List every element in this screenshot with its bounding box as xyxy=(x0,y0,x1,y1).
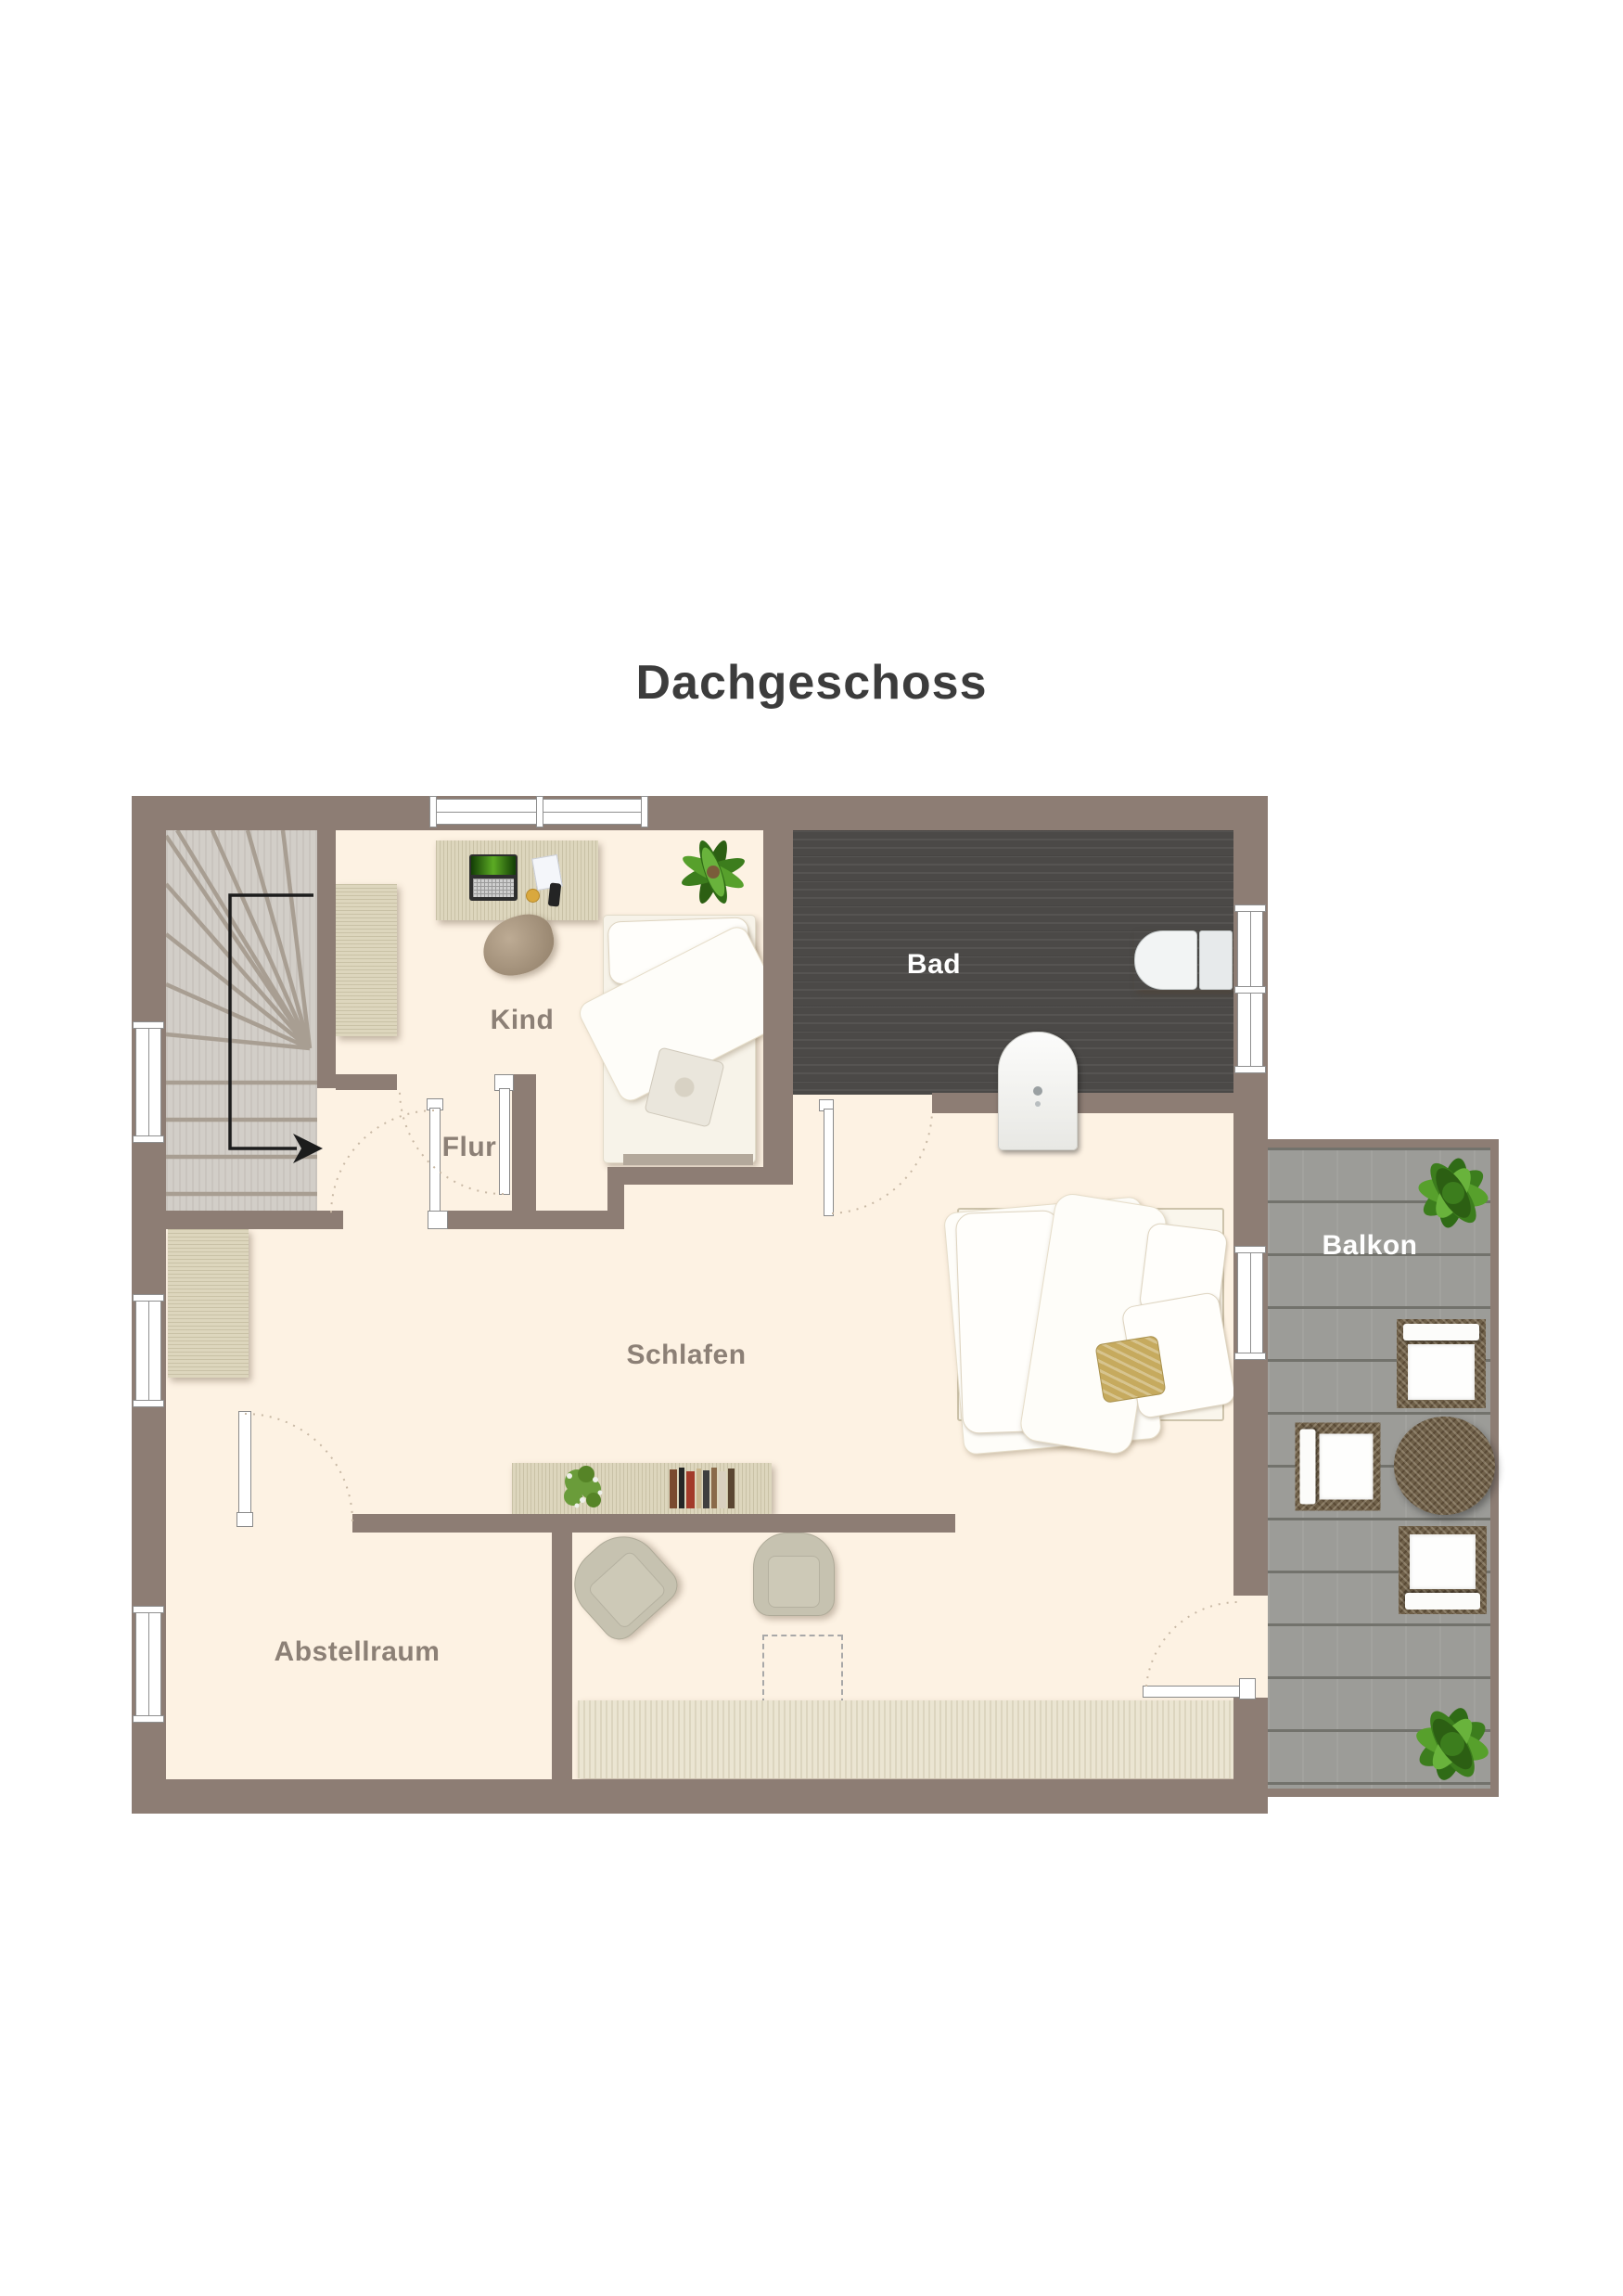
book xyxy=(679,1468,684,1508)
balcony-chair-bottom xyxy=(1399,1526,1487,1614)
laptop-screen xyxy=(471,856,516,875)
armchair-straight xyxy=(753,1533,835,1616)
window-left-1 xyxy=(135,1023,161,1141)
window-cap xyxy=(429,796,437,827)
desk xyxy=(436,840,598,920)
wall-flur-south xyxy=(442,1211,624,1229)
book xyxy=(670,1469,677,1508)
book xyxy=(728,1469,735,1508)
kind-plant xyxy=(673,833,753,911)
wardrobe xyxy=(168,1229,249,1378)
balcony-table xyxy=(1394,1417,1495,1515)
sideboard-plant xyxy=(549,1454,616,1520)
window-cap xyxy=(1234,1066,1266,1073)
books-row xyxy=(670,1468,735,1508)
wall-bottom xyxy=(132,1779,1268,1814)
window-cap xyxy=(133,1715,164,1723)
chair-backrest xyxy=(1403,1324,1480,1340)
toilet xyxy=(1134,930,1233,990)
wall-flur-east xyxy=(512,1074,536,1213)
laptop xyxy=(469,854,518,901)
stairwell-floor xyxy=(166,830,317,1211)
window-cap xyxy=(1234,1246,1266,1253)
kind-door-leaf xyxy=(499,1088,510,1195)
balcony-chair-top xyxy=(1397,1319,1486,1408)
bed-footboard xyxy=(623,1154,753,1165)
phone xyxy=(548,882,562,906)
chair-cushion xyxy=(1410,1534,1475,1590)
window-left-2 xyxy=(135,1296,161,1405)
flur-door-jamb-bottom xyxy=(428,1211,448,1229)
room-label-bad: Bad xyxy=(907,949,961,981)
chair-cushion xyxy=(1319,1434,1373,1499)
kind-bed xyxy=(603,915,756,1163)
coffee-cup xyxy=(526,889,540,903)
chair-backrest xyxy=(1405,1593,1481,1610)
wall-partition xyxy=(352,1514,955,1533)
window-schlafen-right xyxy=(1237,1248,1263,1358)
floor-plan-page: Dachgeschoss Balkon xyxy=(0,0,1623,2296)
window-cap xyxy=(133,1021,164,1029)
balcony: Balkon xyxy=(1268,1139,1499,1797)
window-mullion xyxy=(1234,986,1266,994)
window-cap xyxy=(133,1294,164,1302)
balcony-plant-top xyxy=(1416,1150,1490,1236)
balcony-plant-bottom xyxy=(1414,1700,1490,1789)
window-cap xyxy=(133,1135,164,1143)
book xyxy=(719,1471,726,1508)
book xyxy=(711,1468,717,1508)
flur-door-leaf xyxy=(429,1108,441,1215)
toilet-bowl xyxy=(1134,930,1197,990)
window-cap xyxy=(641,796,648,827)
window-left-3 xyxy=(135,1608,161,1721)
book xyxy=(686,1471,695,1508)
toilet-tank xyxy=(1199,930,1233,990)
window-glass-line xyxy=(148,1026,149,1138)
wall-flur-top xyxy=(336,1074,397,1090)
wall-stair-right xyxy=(317,830,336,1088)
window-glass-line xyxy=(1250,1251,1251,1355)
dresser xyxy=(336,884,397,1036)
window-cap xyxy=(133,1606,164,1613)
window-cap xyxy=(133,1400,164,1407)
balcony-door-jamb xyxy=(1239,1678,1256,1700)
sideboard xyxy=(512,1463,772,1514)
window-cap xyxy=(1234,904,1266,912)
abstellraum-door-leaf xyxy=(238,1411,251,1521)
sink xyxy=(998,1032,1078,1150)
wall-stair-bottom xyxy=(166,1211,343,1229)
window-cap xyxy=(1234,1353,1266,1360)
room-label-schlafen: Schlafen xyxy=(626,1340,746,1371)
window-bad xyxy=(1237,906,1263,1071)
stair-treads xyxy=(166,830,317,1211)
laptop-keyboard xyxy=(473,879,514,897)
page-title: Dachgeschoss xyxy=(0,655,1623,711)
wall-kind-bad xyxy=(763,830,793,1185)
chair-backrest xyxy=(1299,1429,1315,1505)
balcony-chair-left xyxy=(1296,1423,1381,1511)
room-label-balkon: Balkon xyxy=(1322,1230,1417,1262)
bad-door-leaf xyxy=(824,1109,834,1216)
window-glass-line xyxy=(148,1610,149,1718)
wall-bad-bottom xyxy=(932,1093,1233,1113)
wall-top xyxy=(132,796,1268,830)
room-label-abstellraum: Abstellraum xyxy=(275,1636,441,1668)
gold-accent-pillow xyxy=(1094,1335,1166,1404)
room-label-flur: Flur xyxy=(442,1132,497,1163)
window-top-kind xyxy=(431,799,646,825)
balcony-door-leaf xyxy=(1143,1686,1241,1698)
chair-cushion xyxy=(1408,1344,1474,1401)
book xyxy=(696,1469,701,1508)
wall-abstellraum-right xyxy=(552,1533,572,1779)
abstellraum-door-jamb xyxy=(236,1512,253,1527)
window-mullion xyxy=(536,796,543,827)
rug xyxy=(578,1700,1233,1778)
double-bed xyxy=(955,1202,1226,1451)
book xyxy=(703,1470,709,1508)
wall-bed-step xyxy=(607,1167,624,1229)
room-label-kind: Kind xyxy=(491,1005,555,1036)
window-glass-line xyxy=(148,1299,149,1403)
